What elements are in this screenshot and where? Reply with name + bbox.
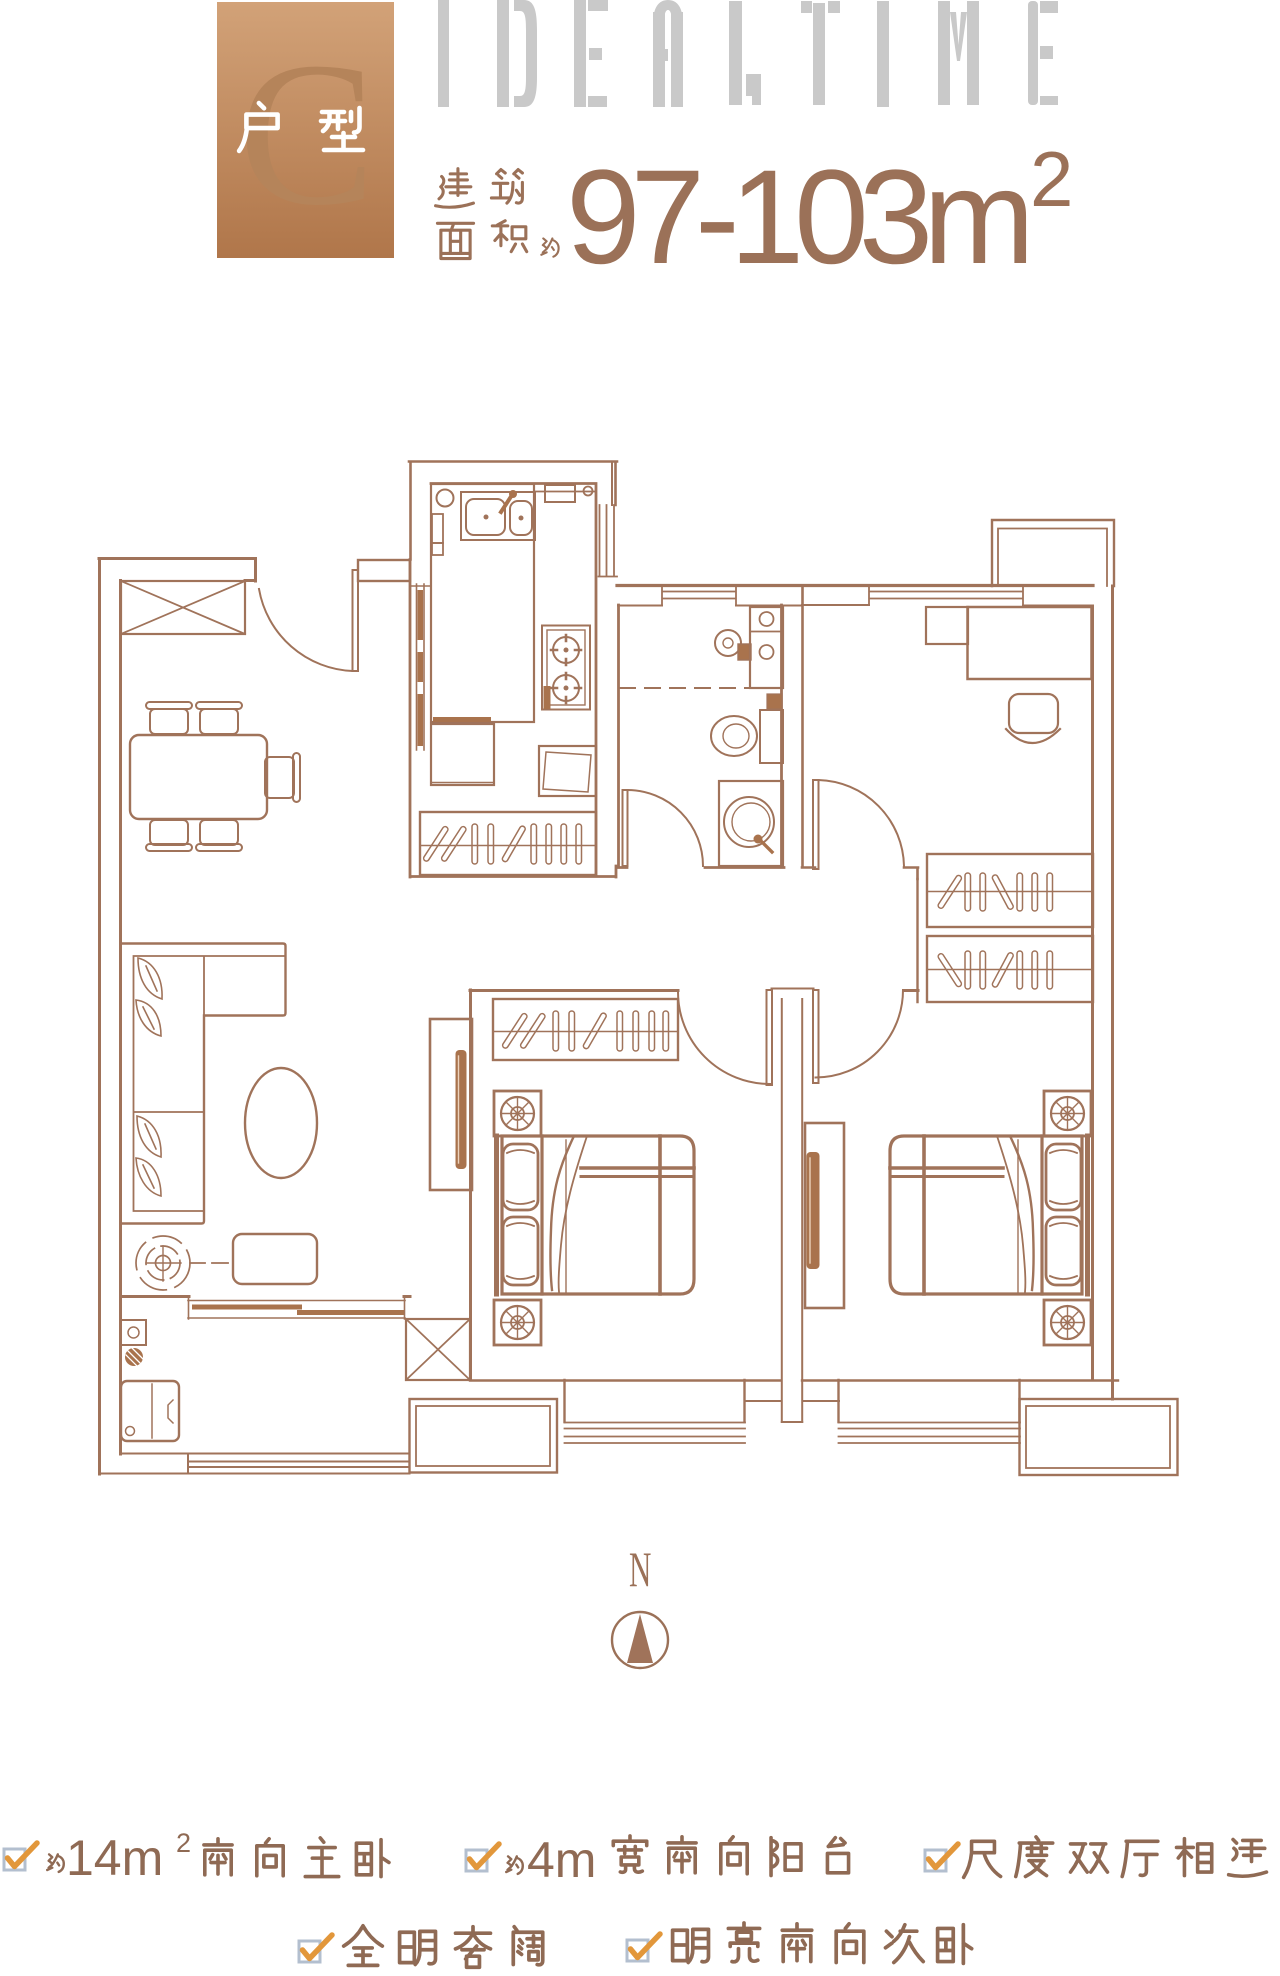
svg-text:4m: 4m <box>527 1832 596 1888</box>
svg-text:2: 2 <box>176 1828 191 1858</box>
svg-text:N: N <box>629 1542 651 1597</box>
svg-text:14m: 14m <box>66 1830 163 1886</box>
svg-text:97-103m: 97-103m <box>566 143 1026 292</box>
svg-text:2: 2 <box>1030 135 1073 223</box>
